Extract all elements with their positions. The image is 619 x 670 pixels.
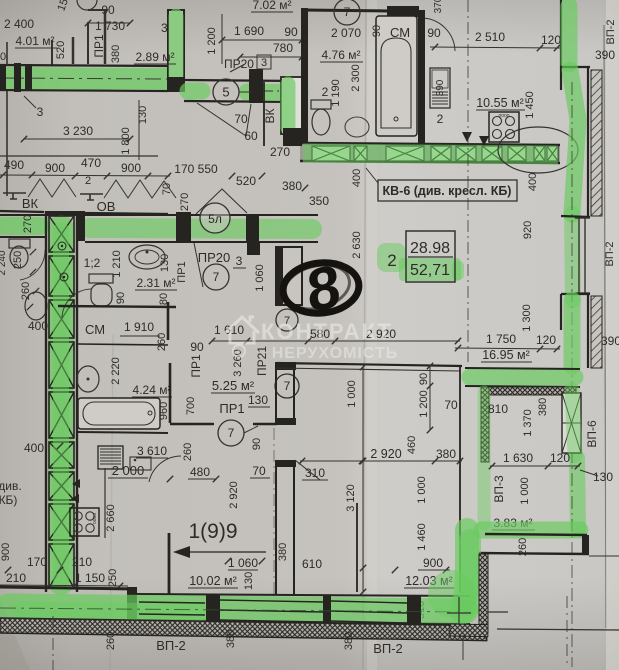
svg-text:390: 390 (601, 334, 619, 348)
svg-text:2 070: 2 070 (331, 26, 361, 40)
svg-text:260: 260 (105, 632, 117, 650)
svg-text:1 450: 1 450 (524, 91, 536, 119)
svg-text:1 060: 1 060 (228, 556, 258, 570)
svg-text:780: 780 (273, 41, 293, 55)
svg-text:250: 250 (107, 569, 119, 587)
svg-text:3: 3 (37, 105, 44, 119)
svg-text:ПР20: ПР20 (198, 250, 230, 265)
svg-text:90: 90 (251, 438, 263, 450)
svg-text:170: 170 (27, 555, 47, 569)
svg-text:2 300: 2 300 (350, 64, 362, 92)
svg-text:90: 90 (190, 340, 204, 354)
svg-text:16.95 м²: 16.95 м² (482, 348, 530, 362)
svg-text:2 240: 2 240 (0, 250, 8, 275)
svg-text:2 920: 2 920 (370, 447, 401, 461)
svg-text:380: 380 (277, 543, 289, 561)
svg-text:400: 400 (351, 169, 363, 187)
svg-text:90: 90 (427, 26, 441, 40)
svg-text:270: 270 (179, 193, 191, 211)
svg-text:260: 260 (20, 282, 32, 300)
svg-text:1 150: 1 150 (75, 571, 105, 585)
svg-text:5: 5 (222, 85, 229, 100)
svg-text:ВП-2: ВП-2 (156, 638, 186, 653)
svg-text:7.02 м²: 7.02 м² (253, 0, 292, 12)
svg-text:КОНТРАКТ: КОНТРАКТ (261, 319, 393, 344)
svg-text:ПР1: ПР1 (219, 401, 244, 416)
svg-text:ВП-3: ВП-3 (492, 475, 506, 503)
svg-text:380: 380 (537, 398, 549, 416)
svg-text:НЕРУХОМІСТЬ: НЕРУХОМІСТЬ (272, 345, 399, 362)
svg-text:170 550: 170 550 (174, 162, 218, 176)
svg-text:ВП-2: ВП-2 (373, 641, 403, 656)
svg-text:1 690: 1 690 (234, 24, 264, 38)
svg-text:90: 90 (371, 25, 383, 37)
svg-text:1 800: 1 800 (120, 127, 132, 155)
svg-text:ПР1: ПР1 (176, 261, 188, 282)
svg-text:810: 810 (488, 402, 508, 416)
svg-text:7: 7 (213, 270, 220, 284)
svg-text:260: 260 (156, 333, 168, 351)
svg-text:2 400: 2 400 (4, 17, 34, 31)
svg-text:7: 7 (284, 379, 291, 393)
svg-text:2 510: 2 510 (475, 30, 505, 44)
svg-text:7: 7 (344, 5, 351, 19)
svg-text:3 230: 3 230 (63, 124, 93, 138)
svg-text:2.89 м²: 2.89 м² (136, 50, 175, 64)
svg-text:c: c (237, 347, 242, 357)
svg-text:70: 70 (444, 398, 458, 412)
svg-text:1 750: 1 750 (486, 332, 516, 346)
svg-text:380: 380 (110, 45, 122, 63)
svg-text:1 630: 1 630 (503, 451, 533, 465)
svg-text:380: 380 (343, 632, 355, 650)
svg-text:1 000: 1 000 (416, 476, 428, 504)
svg-text:520: 520 (236, 174, 256, 188)
svg-text:960: 960 (158, 402, 170, 420)
svg-text:490: 490 (4, 158, 24, 172)
svg-text:1;2: 1;2 (84, 256, 101, 270)
svg-text:2 000: 2 000 (112, 463, 145, 478)
svg-text:2: 2 (437, 112, 444, 126)
svg-text:7: 7 (228, 426, 235, 440)
svg-text:1 200: 1 200 (418, 390, 430, 418)
svg-text:1 460: 1 460 (416, 523, 428, 551)
svg-text:390: 390 (595, 48, 615, 62)
svg-text:СМ: СМ (85, 322, 105, 337)
svg-text:130: 130 (248, 393, 268, 407)
svg-text:210: 210 (72, 555, 92, 569)
svg-text:900: 900 (121, 161, 141, 175)
svg-text:52,71: 52,71 (410, 262, 450, 279)
svg-text:1 000: 1 000 (346, 380, 358, 408)
svg-text:130: 130 (593, 470, 613, 484)
svg-text:див.: див. (0, 479, 22, 493)
svg-text:3 120: 3 120 (345, 484, 357, 512)
svg-text:1 000: 1 000 (519, 477, 531, 505)
svg-text:260: 260 (517, 538, 529, 556)
svg-text:920: 920 (522, 221, 534, 239)
svg-text:310: 310 (305, 466, 325, 480)
svg-text:700: 700 (185, 397, 197, 415)
svg-text:1 190: 1 190 (330, 79, 342, 107)
svg-text:1 730: 1 730 (95, 19, 125, 33)
svg-text:ВП-2: ВП-2 (605, 19, 617, 44)
svg-text:5л: 5л (208, 212, 222, 226)
svg-text:СМ: СМ (390, 25, 410, 40)
svg-text:ПР21: ПР21 (255, 346, 269, 376)
svg-text:3: 3 (236, 254, 243, 268)
svg-text:1 300: 1 300 (521, 304, 533, 332)
svg-text:70: 70 (252, 464, 266, 478)
svg-text:120: 120 (541, 33, 561, 47)
svg-text:70: 70 (161, 183, 173, 195)
svg-text:2: 2 (85, 175, 91, 187)
svg-text:260: 260 (182, 443, 194, 461)
svg-text:КВ-6 (див. кресл. КБ): КВ-6 (див. кресл. КБ) (383, 184, 512, 198)
svg-text:5.25 м²: 5.25 м² (212, 378, 255, 393)
svg-text:4.76 м²: 4.76 м² (322, 48, 361, 62)
svg-text:900: 900 (45, 161, 65, 175)
svg-text:350: 350 (309, 194, 329, 208)
svg-text:oooo: oooo (92, 513, 98, 524)
svg-text:1 060: 1 060 (254, 264, 266, 292)
svg-text:0: 0 (0, 51, 6, 63)
svg-text:270: 270 (22, 215, 34, 233)
svg-text:10.02 м²: 10.02 м² (189, 574, 237, 588)
svg-text:400: 400 (24, 441, 44, 455)
svg-text:120: 120 (550, 451, 570, 465)
svg-text:120: 120 (536, 333, 556, 347)
svg-text:400: 400 (527, 173, 539, 191)
svg-text:8: 8 (305, 252, 343, 325)
svg-text:КБ): КБ) (0, 493, 17, 507)
svg-text:270: 270 (270, 145, 290, 159)
svg-text:3: 3 (261, 57, 267, 69)
svg-text:2 630: 2 630 (351, 231, 363, 259)
svg-text:2: 2 (387, 251, 396, 270)
svg-text:1(9)9: 1(9)9 (188, 520, 237, 543)
svg-text:ВК: ВК (263, 108, 277, 123)
svg-text:520: 520 (55, 41, 67, 59)
svg-text:60: 60 (244, 129, 258, 143)
svg-text:380: 380 (282, 179, 302, 193)
svg-text:610: 610 (302, 557, 322, 571)
svg-text:1 200: 1 200 (206, 27, 218, 55)
svg-text:480: 480 (190, 465, 210, 479)
svg-text:ВК: ВК (22, 196, 39, 211)
svg-text:390: 390 (435, 79, 446, 96)
svg-text:90: 90 (115, 292, 127, 304)
svg-text:460: 460 (406, 436, 418, 454)
svg-text:ОВ: ОВ (97, 199, 116, 214)
svg-text:oooo: oooo (498, 113, 509, 119)
svg-text:470: 470 (81, 156, 101, 170)
svg-text:4.01 м²: 4.01 м² (16, 34, 55, 48)
svg-text:3 610: 3 610 (137, 444, 167, 458)
svg-text:2 220: 2 220 (110, 357, 122, 385)
svg-text:28.98: 28.98 (410, 240, 450, 257)
svg-text:90: 90 (284, 25, 298, 39)
svg-text:4.24 м²: 4.24 м² (133, 383, 172, 397)
svg-text:210: 210 (6, 571, 26, 585)
svg-text:ВП-6: ВП-6 (585, 420, 599, 448)
svg-text:900: 900 (0, 543, 12, 561)
svg-text:1 370: 1 370 (522, 409, 534, 437)
svg-text:380: 380 (436, 447, 456, 461)
svg-text:70: 70 (234, 112, 248, 126)
svg-text:2 920: 2 920 (228, 481, 240, 509)
svg-text:2.31 м²: 2.31 м² (137, 276, 176, 290)
svg-text:90: 90 (418, 373, 430, 385)
svg-text:ПР1: ПР1 (189, 354, 203, 378)
svg-text:10.55 м²: 10.55 м² (476, 96, 524, 110)
svg-text:130: 130 (243, 572, 255, 590)
svg-text:370: 370 (433, 0, 444, 13)
svg-text:380: 380 (225, 630, 237, 648)
svg-text:2: 2 (322, 85, 329, 99)
svg-text:ВП-2: ВП-2 (604, 241, 616, 266)
svg-text:ПР20: ПР20 (224, 57, 254, 71)
svg-text:1 910: 1 910 (124, 320, 154, 334)
svg-text:900: 900 (423, 556, 443, 570)
